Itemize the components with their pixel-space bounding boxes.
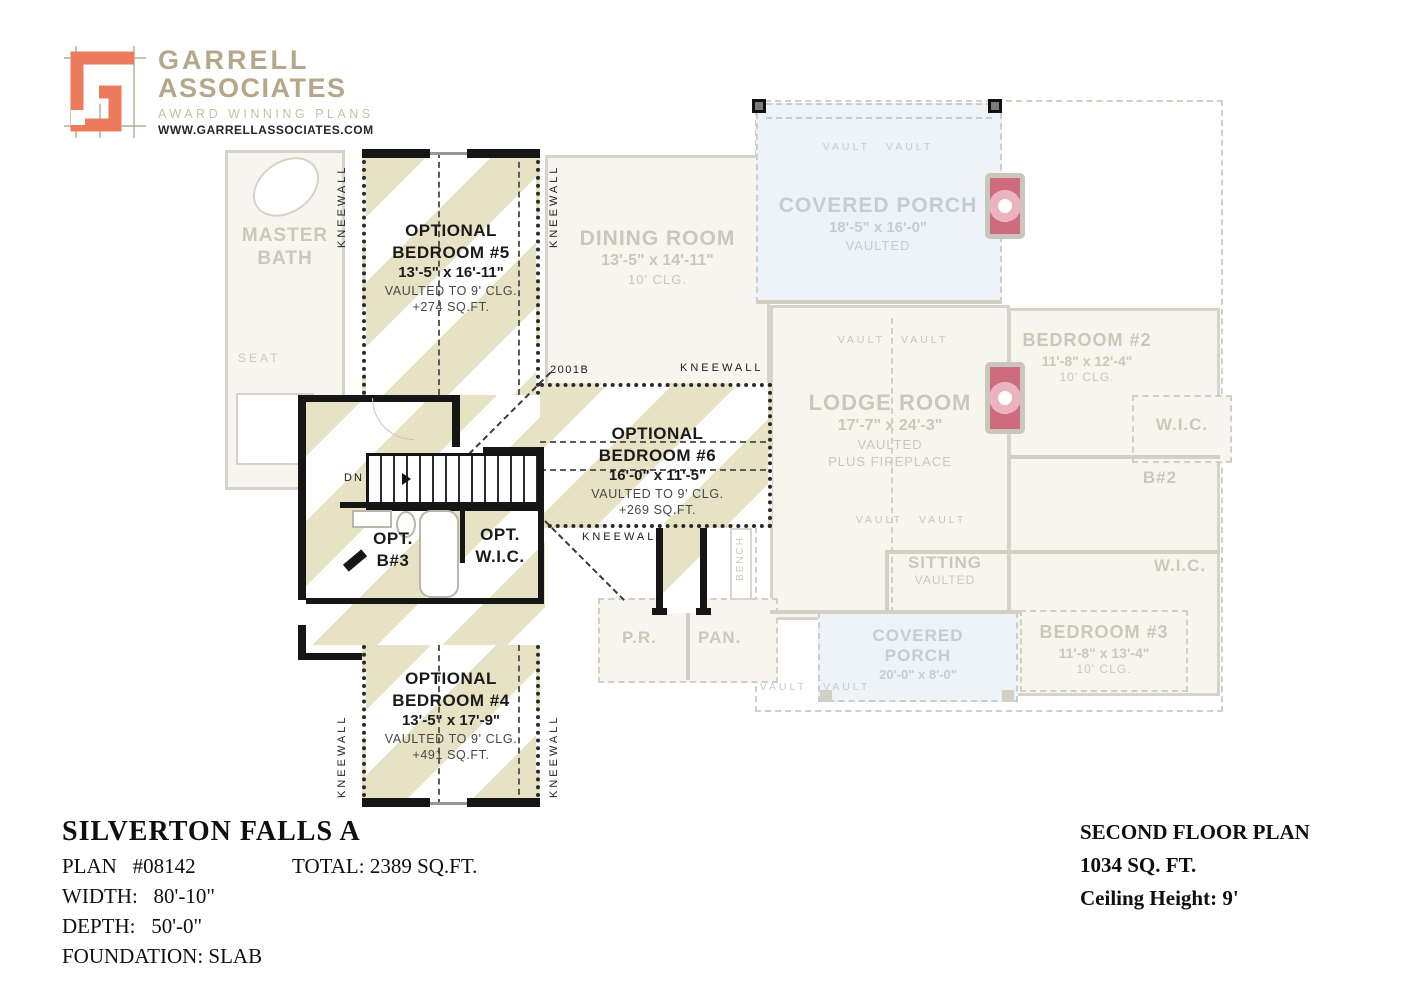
wall-segment <box>538 502 544 604</box>
opt-b3-text: OPT. B#3 <box>358 528 428 572</box>
room-wic-upper: W.I.C. <box>1132 395 1232 463</box>
master-bath-label-2: BATH <box>228 248 342 271</box>
room-covered-porch-top: VAULT VAULT COVERED PORCH 18'-5" x 16'-0… <box>756 103 1002 303</box>
wall-segment <box>467 798 540 807</box>
bedroom6-note: VAULTED TO 9' CLG. <box>545 486 770 502</box>
bedroom4-area: +491 SQ.FT. <box>362 747 540 763</box>
porch-top-name: COVERED PORCH <box>758 193 998 218</box>
bedroom6-title-2: BEDROOM #6 <box>545 445 770 467</box>
window <box>430 152 467 155</box>
room-bedroom-2: BEDROOM #2 11'-8" x 12'-4" 10' CLG. <box>1012 330 1162 385</box>
bedroom6-title-1: OPTIONAL <box>545 423 770 445</box>
porch-top-dims: 18'-5" x 16'-0" <box>758 218 998 238</box>
bedroom5-dims: 13'-5" x 16'-11" <box>362 264 540 283</box>
opt-wic-line1: OPT. <box>463 524 537 546</box>
window <box>430 802 467 805</box>
corridor-area <box>663 528 700 613</box>
wall-segment <box>885 553 889 613</box>
corner-post <box>752 99 766 113</box>
floor-info-block: SECOND FLOOR PLAN 1034 SQ. FT. Ceiling H… <box>1080 820 1310 911</box>
vault-pair-lodge-bottom: VAULT VAULT <box>831 514 991 526</box>
wall-segment <box>700 528 707 613</box>
wall-segment <box>452 395 460 447</box>
plan-number: PLAN #08142 <box>62 854 196 878</box>
porch-top-note: VAULTED <box>758 238 998 255</box>
seat-label: SEAT <box>238 351 280 365</box>
bedroom3-name: BEDROOM #3 <box>1022 622 1186 644</box>
wall-segment <box>696 608 711 615</box>
plan-total: TOTAL: 2389 SQ.FT. <box>292 854 477 879</box>
bedroom4-title-2: BEDROOM #4 <box>362 690 540 712</box>
porch-bottom-name-1: COVERED <box>820 626 1016 646</box>
wall-segment <box>362 149 430 158</box>
lodge-note-1: VAULTED <box>773 437 1007 454</box>
wall-segment <box>362 798 430 807</box>
bedroom5-note: VAULTED TO 9' CLG. <box>362 283 540 299</box>
bedroom4-note: VAULTED TO 9' CLG. <box>362 731 540 747</box>
kneewall-label: KNEEWALL <box>548 712 560 798</box>
plan-depth: DEPTH: 50'-0" <box>62 914 361 939</box>
bedroom4-title-1: OPTIONAL <box>362 668 540 690</box>
wall-segment <box>467 149 540 158</box>
vault-label: VAULT <box>856 514 903 526</box>
vault-label: VAULT <box>823 141 870 153</box>
vault-pair-porch-top: VAULT VAULT <box>798 141 958 153</box>
porch-roof-line <box>766 117 992 119</box>
room-sitting: SITTING VAULTED <box>885 553 1005 589</box>
pr-label: P.R. <box>622 628 657 648</box>
bedroom3-clg: 10' CLG. <box>1022 662 1186 678</box>
room-b2: B#2 <box>1125 468 1195 488</box>
dn-arrow-icon <box>402 473 411 485</box>
dn-label: DN <box>344 472 364 484</box>
b2-label: B#2 <box>1125 468 1195 488</box>
bedroom5-area: +274 SQ.FT. <box>362 299 540 315</box>
bedroom3-dims: 11'-8" x 13'-4" <box>1022 644 1186 662</box>
vault-label: VAULT <box>901 334 948 346</box>
wic-upper-label: W.I.C. <box>1134 415 1230 435</box>
floor-info-line1: SECOND FLOOR PLAN <box>1080 820 1310 845</box>
pan-label: PAN. <box>698 628 741 648</box>
vault-label: VAULT <box>838 334 885 346</box>
kneewall-label: KNEEWALL <box>336 712 348 798</box>
opt-b3-line1: OPT. <box>358 528 428 550</box>
wall-segment <box>298 653 364 660</box>
kneewall-label: KNEEWALL <box>680 362 764 374</box>
bedroom2-clg: 10' CLG. <box>1012 370 1162 386</box>
lodge-dims: 17'-7" x 24'-3" <box>773 416 1007 437</box>
room-dining: DINING ROOM 13'-5" x 14'-11" 10' CLG. <box>545 155 770 390</box>
sitting-name: SITTING <box>885 553 1005 573</box>
dining-dims: 13'-5" x 14'-11" <box>548 251 767 272</box>
bedroom4-dims: 13'-5" x 17'-9" <box>362 712 540 731</box>
tub-icon <box>242 145 331 229</box>
kneewall-label: KNEEWALL <box>548 162 560 248</box>
opt-wic-line2: W.I.C. <box>463 546 537 568</box>
kneewall-label: KNEEWALL <box>336 162 348 248</box>
wall-segment <box>756 300 1002 304</box>
sitting-note: VAULTED <box>885 573 1005 589</box>
lodge-name: LODGE ROOM <box>773 390 1007 416</box>
title-block: SILVERTON FALLS A PLAN #08142 TOTAL: 238… <box>62 816 361 969</box>
bedroom6-area: +269 SQ.FT. <box>545 502 770 518</box>
porch-column-base <box>820 690 832 702</box>
wall-segment <box>686 604 690 680</box>
room-bedroom-3: BEDROOM #3 11'-8" x 13'-4" 10' CLG. <box>1020 610 1188 692</box>
vault-label: VAULT <box>919 514 966 526</box>
plan-width: WIDTH: 80'-10" <box>62 884 361 909</box>
wall-segment <box>306 598 542 604</box>
bedroom5-text: OPTIONAL BEDROOM #5 13'-5" x 16'-11" VAU… <box>362 220 540 315</box>
wall-segment <box>537 447 544 507</box>
bedroom6-dims: 16'-0" x 11'-5" <box>545 467 770 486</box>
stair-ref-label: 2001B <box>550 364 589 376</box>
corner-post <box>988 99 1002 113</box>
dining-name: DINING ROOM <box>548 226 767 251</box>
room-wic-lower: W.I.C. <box>1135 556 1225 576</box>
wall-segment <box>340 502 542 508</box>
fireplace-icon <box>985 173 1025 239</box>
floor-info-line2: 1034 SQ. FT. <box>1080 853 1310 878</box>
opt-b3-line2: B#3 <box>358 550 428 572</box>
vault-pair-lodge-top: VAULT VAULT <box>813 334 973 346</box>
porch-column-base <box>1002 690 1014 702</box>
plan-name: SILVERTON FALLS A <box>62 816 361 848</box>
dining-clg: 10' CLG. <box>548 272 767 289</box>
bedroom2-name: BEDROOM #2 <box>1012 330 1162 352</box>
wic-lower-label: W.I.C. <box>1135 556 1225 576</box>
lodge-note-2: PLUS FIREPLACE <box>773 454 1007 471</box>
bedroom5-title-2: BEDROOM #5 <box>362 242 540 264</box>
plan-foundation: FOUNDATION: SLAB <box>62 944 361 969</box>
bedroom2-dims: 11'-8" x 12'-4" <box>1012 352 1162 370</box>
wall-segment <box>483 447 540 454</box>
sink-icon <box>352 510 392 528</box>
bench: BENCH <box>730 528 752 600</box>
master-bath-label-1: MASTER <box>228 225 342 248</box>
opt-wic-text: OPT. W.I.C. <box>463 524 537 568</box>
wall-segment <box>770 610 1020 614</box>
porch-bottom-name-2: PORCH <box>820 646 1016 666</box>
wall-segment <box>298 395 306 600</box>
bedroom6-text: OPTIONAL BEDROOM #6 16'-0" x 11'-5" VAUL… <box>545 423 770 518</box>
fireplace-icon <box>985 362 1025 434</box>
floor-info-line3: Ceiling Height: 9' <box>1080 886 1310 911</box>
bedroom5-title-1: OPTIONAL <box>362 220 540 242</box>
wall-segment <box>652 608 667 615</box>
bench-label: BENCH <box>735 536 746 581</box>
vault-label: VAULT <box>886 141 933 153</box>
kneewall-label: KNEEWALL <box>582 531 666 543</box>
wall-segment <box>1008 455 1220 459</box>
bedroom4-text: OPTIONAL BEDROOM #4 13'-5" x 17'-9" VAUL… <box>362 668 540 763</box>
wall-segment <box>656 528 663 613</box>
wall-segment <box>885 550 1220 554</box>
